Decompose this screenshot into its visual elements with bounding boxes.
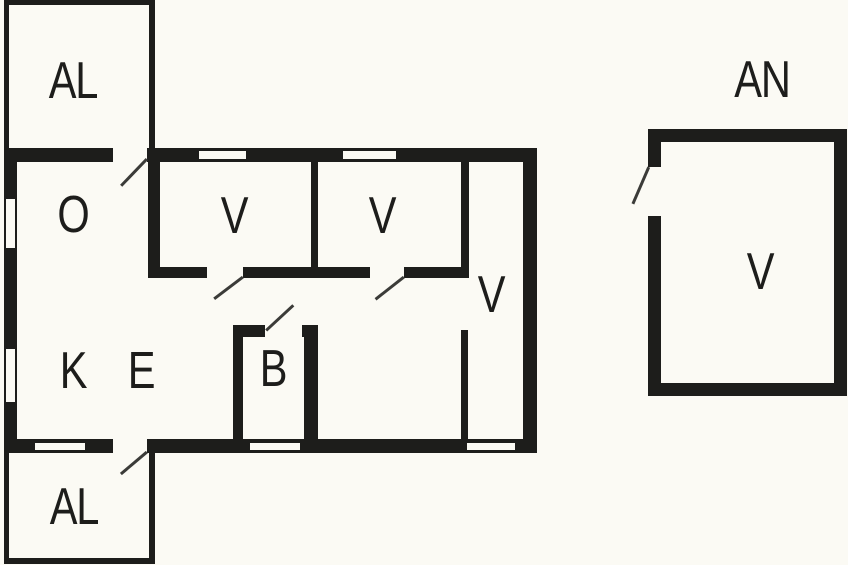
wall-bedrooms-bottom-a	[148, 267, 207, 278]
room-label-bedroom-v2: V	[369, 190, 396, 242]
room-label-living-o: O	[57, 189, 88, 241]
room-label-entry-e: E	[128, 345, 155, 397]
main-right-wall	[523, 148, 537, 453]
wall-bedrooms-bottom-c	[404, 267, 469, 278]
annex-bottom-wall-left	[4, 453, 9, 564]
room-label-annex-al-top: AL	[49, 55, 97, 107]
annex-bottom-wall-bottom	[4, 558, 155, 564]
door-annex-bottom-swing-icon	[120, 451, 148, 475]
floorplan-canvas: AL O V V V K E B AL AN V	[0, 0, 848, 565]
window-top-1-icon	[197, 149, 248, 161]
bath-left-wall	[233, 325, 243, 441]
window-left-2-icon	[4, 347, 17, 404]
door-bedroom-2-swing-icon	[375, 276, 405, 300]
room-label-kitchen-k: K	[60, 345, 87, 397]
door-bathroom-swing-icon	[265, 304, 294, 331]
outbuilding-title-an: AN	[734, 54, 789, 106]
room-label-annex-al-bottom: AL	[50, 481, 98, 533]
annex-bottom-wall-right	[149, 453, 155, 564]
annex-top-wall-right	[149, 0, 155, 148]
room-label-bathroom-b: B	[260, 343, 287, 395]
wall-living-bedroom1	[148, 162, 160, 278]
bath-right-wall	[304, 325, 318, 441]
room-label-bedroom-v1: V	[221, 190, 248, 242]
door-outbuilding-swing-icon	[632, 167, 650, 205]
outbuilding-left-wall-upper	[648, 129, 661, 167]
window-bottom-2-icon	[248, 441, 302, 452]
window-left-1-icon	[4, 197, 17, 250]
outbuilding-top-wall	[648, 129, 847, 142]
annex-top-wall-top	[4, 0, 155, 5]
wall-bedroom1-bedroom2	[311, 162, 318, 267]
window-bottom-1-icon	[33, 441, 87, 452]
main-top-wall-left	[4, 148, 113, 162]
wall-bedrooms-bottom-b	[243, 267, 370, 278]
window-top-2-icon	[341, 149, 398, 161]
room-label-bedroom-v3: V	[478, 269, 505, 321]
outbuilding-left-wall-lower	[648, 216, 661, 396]
outbuilding-right-wall	[834, 129, 847, 396]
door-annex-top-swing-icon	[120, 158, 148, 187]
window-bottom-3-icon	[465, 441, 517, 452]
room-label-outbuilding-v: V	[747, 246, 774, 298]
wall-bedroom3-lower	[461, 330, 468, 439]
wall-bedroom2-bedroom3	[461, 162, 469, 267]
outbuilding-bottom-wall	[648, 383, 847, 396]
main-left-wall	[4, 148, 17, 453]
door-bedroom-1-swing-icon	[213, 276, 244, 300]
annex-top-wall-left	[4, 0, 9, 148]
